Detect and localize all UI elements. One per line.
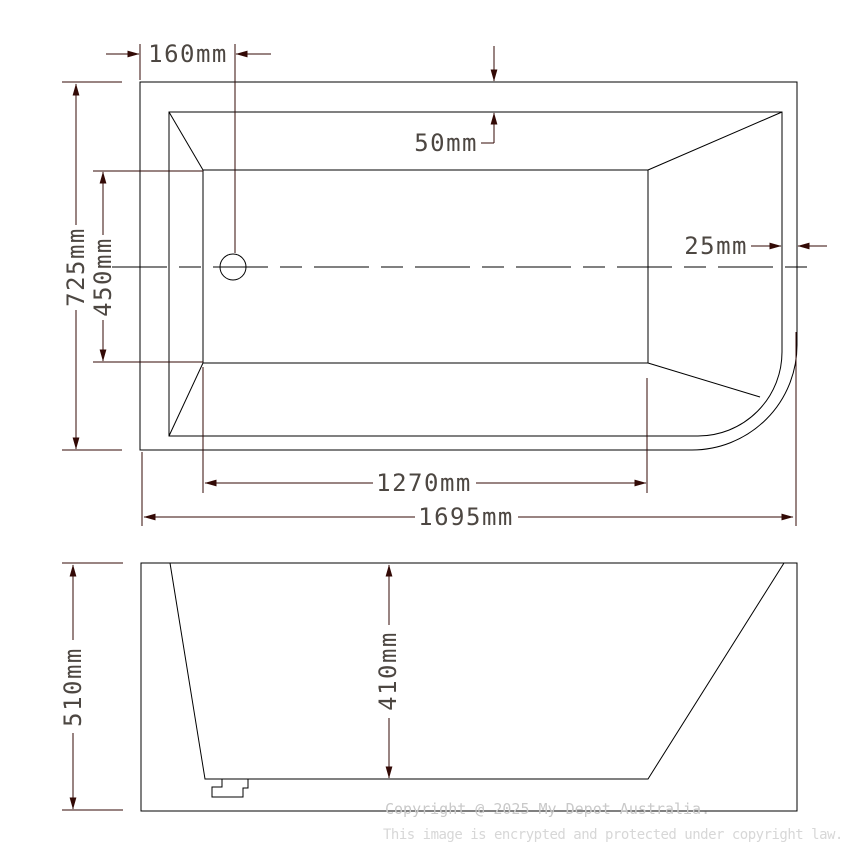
watermark-line2: This image is encrypted and protected un…: [383, 827, 843, 843]
technical-drawing-canvas: 160mm 50mm 25mm 725mm 450mm 1270mm 1695m…: [0, 0, 850, 850]
dim-label-1695: 1695mm: [418, 503, 514, 531]
dim-label-450: 450mm: [89, 237, 117, 317]
side-view: [141, 563, 797, 811]
drain-waste-fitting: [212, 779, 248, 797]
dim-label-510: 510mm: [59, 647, 87, 727]
floor-corner-diagonal-bottom-right: [648, 363, 760, 397]
bathtub-drawing: 160mm 50mm 25mm 725mm 450mm 1270mm 1695m…: [0, 0, 850, 850]
floor-corner-diagonal-bottom-left: [169, 363, 203, 436]
dim-label-25: 25mm: [684, 232, 748, 260]
watermark-line1: Copyright @ 2025 My Depot Australia.: [385, 800, 710, 818]
side-inner-profile: [170, 563, 784, 779]
watermark: Copyright @ 2025 My Depot Australia. Thi…: [383, 800, 843, 843]
dim-label-725: 725mm: [62, 227, 90, 307]
tub-inner-rim-outline: [169, 112, 782, 436]
dim-label-160: 160mm: [148, 40, 228, 68]
dim-label-1270: 1270mm: [376, 469, 472, 497]
side-outer-outline: [141, 563, 797, 811]
top-view-dimensions: [62, 44, 827, 526]
side-view-dimensions: [62, 563, 389, 810]
dim-label-410: 410mm: [374, 631, 402, 711]
dim-label-50: 50mm: [414, 129, 478, 157]
floor-corner-diagonal-top-left: [169, 112, 203, 170]
dimension-labels: 160mm 50mm 25mm 725mm 450mm 1270mm 1695m…: [59, 40, 748, 727]
floor-corner-diagonal-top-right: [648, 112, 782, 170]
